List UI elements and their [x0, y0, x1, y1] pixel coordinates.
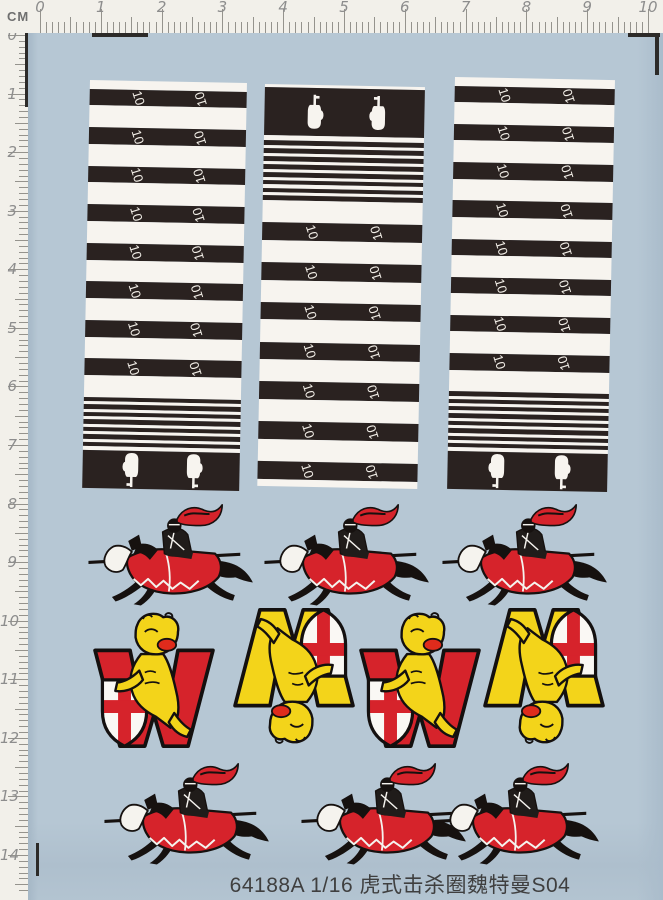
ruler-tick [216, 22, 217, 33]
ruler-tick [19, 463, 28, 464]
ruler-tick [15, 299, 28, 300]
ruler-tick [19, 316, 28, 317]
ruler-tick [399, 22, 400, 33]
ruler-number: 10 [638, 0, 657, 16]
ruler-tick [19, 451, 28, 452]
ruler-number: 5 [339, 0, 349, 16]
ruler-tick [447, 22, 448, 33]
strip-gap [262, 240, 422, 265]
ring-count-label: 10 [492, 277, 509, 295]
ruler-tick [19, 404, 28, 405]
ruler-tick [19, 539, 28, 540]
ruler-tick [19, 345, 28, 346]
ruler-tick [539, 22, 540, 33]
ruler-number: 11 [0, 670, 17, 688]
ruler-tick [19, 779, 28, 780]
ruler-tick [19, 480, 28, 481]
ruler-tick [15, 181, 28, 182]
top-ruler-ticks: 012345678910 [0, 0, 663, 33]
ruler-number: 2 [157, 0, 167, 16]
ring-count-label: 10 [495, 124, 512, 142]
ring-count-label: 10 [558, 164, 575, 182]
strip-gap [259, 399, 419, 424]
ruler-tick [19, 744, 28, 745]
ring-count-label: 10 [129, 128, 146, 146]
ruler-tick [58, 22, 59, 33]
ruler-tick [19, 275, 28, 276]
ruler-number: 14 [0, 846, 17, 864]
ruler-tick [435, 17, 436, 33]
ruler-tick [514, 22, 515, 33]
ruler-tick [19, 761, 28, 762]
ruler-tick [19, 656, 28, 657]
strip-gap [89, 105, 246, 130]
ring-count-label: 10 [299, 462, 316, 480]
ruler-tick [362, 22, 363, 33]
ruler-tick [308, 22, 309, 33]
ruler-tick [289, 22, 290, 33]
strip-gap [86, 259, 243, 284]
ruler-tick [186, 22, 187, 33]
ruler-tick [125, 22, 126, 33]
corner-mark-bottom-left-v [36, 843, 39, 876]
ruler-tick [19, 427, 28, 428]
ring-count-label: 10 [496, 86, 513, 104]
ruler-tick [19, 691, 28, 692]
ruler-tick [599, 22, 600, 33]
ruler-tick [368, 22, 369, 33]
ruler-tick [557, 17, 558, 33]
ruler-tick [247, 22, 248, 33]
ruler-tick [332, 22, 333, 33]
ruler-tick [545, 22, 546, 33]
strip-gap [85, 298, 242, 323]
ruler-tick [210, 22, 211, 33]
ruler-tick [19, 814, 28, 815]
ruler-tick [19, 287, 28, 288]
ruler-tick [19, 703, 28, 704]
ring-count-label: 10 [192, 129, 209, 147]
ruler-tick [19, 849, 28, 850]
jousting-knight-emblem [82, 503, 272, 606]
ruler-tick [19, 222, 28, 223]
ruler-tick [19, 439, 28, 440]
ruler-tick [19, 867, 28, 868]
ruler-tick [174, 22, 175, 33]
ruler-tick [19, 509, 28, 510]
ruler-tick [19, 170, 28, 171]
ruler-tick [19, 714, 28, 715]
ruler-tick [19, 603, 28, 604]
ruler-tick [19, 433, 28, 434]
ring-count-label: 10 [363, 463, 380, 481]
ruler-tick [19, 129, 28, 130]
strip-gap [452, 217, 612, 242]
ruler-tick [15, 533, 28, 534]
wittmann-w-tiger-emblem [88, 608, 220, 748]
tank-silhouette-band [447, 451, 608, 492]
ring-count-label: 10 [302, 303, 319, 321]
product-caption: 64188A 1/16 虎式击杀圈魏特曼S04 [170, 869, 630, 899]
strip-gap [260, 319, 420, 344]
ring-count-label: 10 [365, 344, 382, 362]
ruler-tick [19, 158, 28, 159]
ruler-tick [19, 457, 28, 458]
ruler-tick [19, 609, 28, 610]
strip-gap [87, 221, 244, 246]
ruler-tick [180, 22, 181, 33]
corner-mark-top-right-v [655, 33, 659, 75]
ruler-number: 0 [35, 0, 45, 16]
ruler-tick [441, 22, 442, 33]
ruler-tick [19, 568, 28, 569]
ring-count-label: 10 [127, 243, 144, 261]
ruler-tick [19, 878, 28, 879]
ruler-tick [612, 22, 613, 33]
ruler-tick [19, 381, 28, 382]
ruler-tick [15, 650, 28, 651]
ruler-number: 9 [582, 0, 592, 16]
ring-count-label: 10 [130, 89, 147, 107]
ruler-tick [15, 709, 28, 710]
ruler-tick [15, 591, 28, 592]
ruler-tick [19, 808, 28, 809]
ruler-number: 2 [0, 143, 17, 161]
ruler-tick [15, 240, 28, 241]
tank-silhouette-band [82, 449, 240, 491]
ruler-tick [19, 234, 28, 235]
ruler-tick [19, 773, 28, 774]
ruler-tick [241, 22, 242, 33]
ruler-tick [484, 22, 485, 33]
ruler-tick [52, 22, 53, 33]
ruler-tick [19, 340, 28, 341]
ruler-tick [19, 802, 28, 803]
strip-gap [258, 439, 418, 464]
ruler-tick [192, 17, 193, 33]
strip-gap [88, 182, 245, 207]
ruler-tick [374, 17, 375, 33]
ruler-tick [19, 369, 28, 370]
ruler-tick [19, 492, 28, 493]
ruler-number: 8 [0, 495, 17, 513]
ring-count-label: 10 [494, 162, 511, 180]
ruler-tick [19, 363, 28, 364]
ruler-tick [393, 22, 394, 33]
ruler-tick [19, 193, 28, 194]
ruler-tick [15, 474, 28, 475]
ruler-tick [76, 22, 77, 33]
ruler-tick [64, 22, 65, 33]
ruler-number: 13 [0, 787, 17, 805]
ruler-tick [143, 22, 144, 33]
ruler-tick [19, 755, 28, 756]
left-ruler: 01234567891011121314 [0, 0, 28, 900]
tank-silhouette-band [264, 87, 425, 138]
ruler-tick [131, 17, 132, 33]
ruler-tick [19, 498, 28, 499]
ruler-tick [19, 638, 28, 639]
barrel-ring-strip-middle: 1010101010101010101010101010 [257, 84, 425, 489]
ruler-number: 1 [96, 0, 106, 16]
ruler-tick [19, 873, 28, 874]
ruler-number: 1 [0, 85, 17, 103]
ruler-tick [19, 117, 28, 118]
ruler-tick [95, 22, 96, 33]
ruler-tick [19, 527, 28, 528]
ruler-tick [137, 22, 138, 33]
ring-count-label: 10 [193, 90, 210, 108]
ruler-tick [19, 410, 28, 411]
ruler-tick [19, 398, 28, 399]
ruler-tick [19, 135, 28, 136]
ruler-tick [19, 246, 28, 247]
ruler-number: 7 [0, 436, 17, 454]
wittmann-w-tiger-emblem [354, 608, 486, 748]
ruler-tick [19, 586, 28, 587]
ring-count-label: 10 [560, 87, 577, 105]
ruler-tick [532, 22, 533, 33]
ring-count-label: 10 [557, 240, 574, 258]
jousting-knight-emblem [98, 762, 288, 865]
ruler-tick [271, 22, 272, 33]
ruler-tick [326, 22, 327, 33]
ruler-tick [235, 22, 236, 33]
ruler-number: 4 [0, 260, 17, 278]
ruler-tick [15, 884, 28, 885]
ruler-tick [19, 468, 28, 469]
ruler-tick [15, 826, 28, 827]
ruler-number: 9 [0, 553, 17, 571]
ruler-tick [19, 521, 28, 522]
ruler-tick [83, 22, 84, 33]
ruler-tick [19, 832, 28, 833]
ruler-number: 10 [0, 612, 17, 630]
ruler-tick [19, 322, 28, 323]
ruler-number: 6 [400, 0, 410, 16]
tank-top-view-icon [550, 454, 572, 490]
ring-count-label: 10 [303, 223, 320, 241]
ring-count-label: 10 [494, 201, 511, 219]
strip-gap [453, 140, 613, 165]
ruler-tick [593, 22, 594, 33]
ruler-tick [277, 22, 278, 33]
ring-count-label: 10 [300, 382, 317, 400]
ruler-tick [46, 22, 47, 33]
ruler-tick [19, 545, 28, 546]
ruler-tick [19, 750, 28, 751]
ruler-tick [19, 726, 28, 727]
top-ruler: 012345678910 [0, 0, 663, 33]
ruler-tick [19, 843, 28, 844]
ring-count-label: 10 [126, 320, 143, 338]
ruler-tick [508, 22, 509, 33]
ruler-number: 3 [0, 202, 17, 220]
ruler-tick [636, 22, 637, 33]
ruler-tick [19, 515, 28, 516]
ruler-tick [19, 111, 28, 112]
strip-gap [453, 179, 613, 204]
ruler-tick [19, 615, 28, 616]
ring-count-label: 10 [559, 125, 576, 143]
ruler-tick [429, 22, 430, 33]
ruler-tick [107, 22, 108, 33]
strip-gap [450, 293, 610, 318]
ruler-tick [19, 890, 28, 891]
ruler-tick [198, 22, 199, 33]
ring-count-label: 10 [300, 422, 317, 440]
ruler-tick [380, 22, 381, 33]
ring-count-label: 10 [189, 283, 206, 301]
ruler-tick [113, 22, 114, 33]
ruler-tick [19, 820, 28, 821]
ruler-unit-label: CM [7, 9, 29, 24]
ruler-tick [453, 22, 454, 33]
ruler-tick [228, 22, 229, 33]
ruler-tick [478, 22, 479, 33]
ruler-tick [411, 22, 412, 33]
strip-gap [450, 331, 610, 356]
ruler-tick [19, 580, 28, 581]
jousting-knight-emblem [436, 503, 626, 606]
ruler-tick [642, 22, 643, 33]
ruler-tick [551, 22, 552, 33]
ruler-tick [19, 861, 28, 862]
ring-count-label: 10 [190, 244, 207, 262]
ruler-tick [19, 422, 28, 423]
ring-count-label: 10 [191, 167, 208, 185]
ruler-tick [490, 22, 491, 33]
corner-mark-top-left-h [92, 33, 148, 37]
ring-count-label: 10 [191, 206, 208, 224]
ring-count-label: 10 [558, 202, 575, 220]
strip-gap [454, 102, 614, 127]
ruler-tick [417, 22, 418, 33]
ruler-tick [89, 22, 90, 33]
ruler-tick [19, 140, 28, 141]
ruler-number: 7 [461, 0, 471, 16]
ruler-tick [19, 199, 28, 200]
ruler-tick [19, 720, 28, 721]
ruler-tick [119, 22, 120, 33]
ruler-tick [19, 293, 28, 294]
tank-top-view-icon [486, 453, 508, 489]
ring-count-label: 10 [556, 278, 573, 296]
ruler-tick [19, 486, 28, 487]
ruler-tick [19, 187, 28, 188]
ruler-tick [15, 416, 28, 417]
ruler-tick [19, 334, 28, 335]
ruler-tick [253, 17, 254, 33]
ring-count-label: 10 [364, 423, 381, 441]
ruler-tick [15, 357, 28, 358]
wittmann-w-tiger-emblem [228, 608, 360, 748]
ruler-tick [19, 550, 28, 551]
tank-top-view-icon [183, 453, 205, 489]
ruler-tick [520, 22, 521, 33]
strip-gap [261, 280, 421, 305]
ring-count-label: 10 [367, 224, 384, 242]
ruler-tick [19, 310, 28, 311]
ruler-tick [19, 685, 28, 686]
ring-count-label: 10 [493, 239, 510, 257]
wittmann-w-tiger-emblem [478, 608, 610, 748]
ruler-tick [19, 662, 28, 663]
ring-count-label: 10 [303, 263, 320, 281]
ruler-tick [472, 22, 473, 33]
ruler-tick [295, 22, 296, 33]
ring-count-label: 10 [301, 342, 318, 360]
ruler-tick [320, 22, 321, 33]
ring-count-label: 10 [492, 315, 509, 333]
ruler-tick [19, 732, 28, 733]
jousting-knight-emblem [428, 762, 618, 865]
ruler-tick [618, 17, 619, 33]
strip-gap [88, 144, 245, 169]
ruler-tick [19, 574, 28, 575]
tank-top-view-icon [367, 95, 389, 131]
ruler-tick [563, 22, 564, 33]
tank-top-view-icon [303, 94, 325, 130]
strip-gap [262, 200, 422, 225]
barrel-ring-strip-left: 10101010101010101010101010101010 [82, 80, 247, 491]
ring-count-label: 10 [126, 282, 143, 300]
ruler-tick [502, 22, 503, 33]
ruler-tick [19, 556, 28, 557]
ruler-number: 12 [0, 729, 17, 747]
strip-gap [449, 370, 609, 395]
ruler-tick [70, 17, 71, 33]
ruler-tick [630, 22, 631, 33]
ring-count-label: 10 [188, 322, 205, 340]
ruler-tick [19, 351, 28, 352]
ruler-tick [19, 627, 28, 628]
ruler-tick [19, 644, 28, 645]
tank-top-view-icon [120, 451, 142, 487]
ring-count-label: 10 [556, 316, 573, 334]
ring-count-label: 10 [555, 355, 572, 373]
ruler-tick [19, 263, 28, 264]
left-ruler-ticks: 01234567891011121314 [0, 0, 28, 900]
ruler-tick [581, 22, 582, 33]
ruler-tick [19, 228, 28, 229]
ruler-tick [423, 22, 424, 33]
ruler-tick [314, 17, 315, 33]
ruler-tick [19, 281, 28, 282]
ruler-tick [460, 22, 461, 33]
ruler-tick [19, 837, 28, 838]
ruler-tick [19, 785, 28, 786]
ruler-tick [387, 22, 388, 33]
ruler-tick [19, 252, 28, 253]
ruler-tick [19, 392, 28, 393]
ruler-tick [19, 304, 28, 305]
ring-count-label: 10 [128, 205, 145, 223]
ruler-tick [575, 22, 576, 33]
strip-gap [451, 255, 611, 280]
ruler-tick [19, 146, 28, 147]
ruler-number: 6 [0, 377, 17, 395]
ruler-tick [156, 22, 157, 33]
ruler-number: 3 [218, 0, 228, 16]
ruler-tick [259, 22, 260, 33]
ruler-tick [19, 375, 28, 376]
ring-count-label: 10 [129, 166, 146, 184]
ruler-number: 8 [522, 0, 532, 16]
ruler-tick [204, 22, 205, 33]
ruler-tick [19, 217, 28, 218]
ring-count-label: 10 [367, 264, 384, 282]
